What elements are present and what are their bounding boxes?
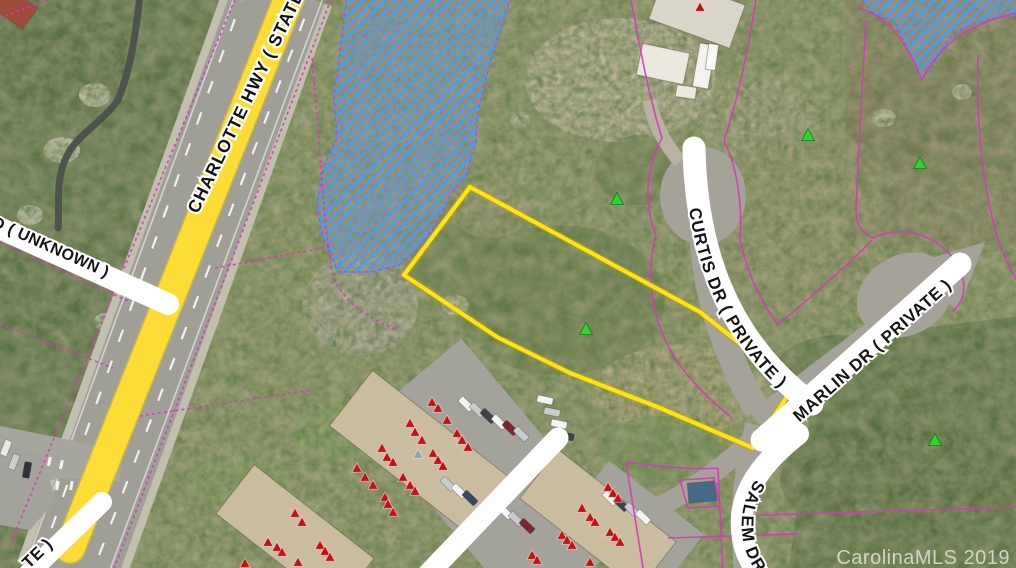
building-roof <box>675 85 696 100</box>
building-roof <box>687 481 717 503</box>
mls-aerial-map[interactable]: CHARLOTTE HWY ( STATE ) TE ) D ( UNKNOWN… <box>0 0 1016 568</box>
watermark: CarolinaMLS 2019 <box>836 547 1010 568</box>
map-canvas: CHARLOTTE HWY ( STATE ) TE ) D ( UNKNOWN… <box>0 0 1016 568</box>
